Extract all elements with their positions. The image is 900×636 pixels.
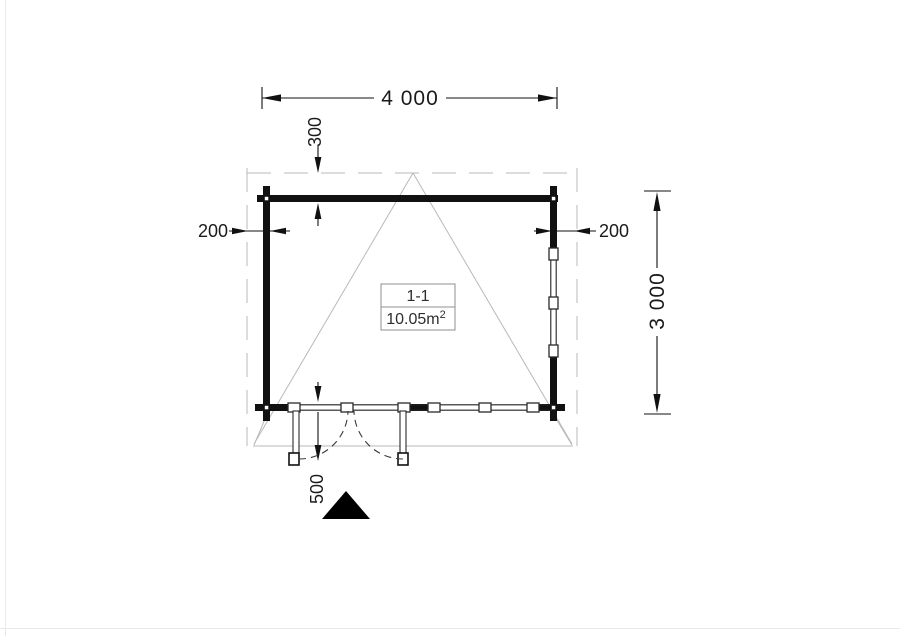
arrow-left-icon	[270, 228, 286, 234]
arrow-right-icon	[536, 228, 552, 234]
dim-overall-width: 4 000	[262, 87, 557, 110]
corner-joint-dot	[265, 406, 269, 410]
dim-overhang-right-value: 200	[599, 221, 629, 241]
wall-top	[257, 195, 558, 202]
dim-depth-value: 3 000	[646, 272, 669, 330]
arrow-down-icon	[315, 386, 322, 402]
dim-overhang-left-value: 200	[198, 221, 228, 241]
arrow-down-icon	[315, 157, 322, 173]
wall-right-upper	[550, 186, 557, 250]
window-mullion-marker	[549, 297, 558, 309]
dim-terrace-value: 500	[307, 474, 327, 504]
window-mullion-marker	[479, 403, 491, 412]
dim-overhang-top: 300	[305, 117, 325, 226]
arrow-up-icon	[653, 192, 660, 211]
floor-plan-drawing: 4 000 300 200 200 3 000 500	[0, 0, 900, 636]
wall-bottom-left	[255, 404, 288, 411]
arrow-down-icon	[653, 394, 660, 413]
door-meeting-marker	[341, 403, 353, 412]
door-leaf-left	[293, 411, 299, 453]
right-wall-window	[549, 248, 558, 357]
arrow-up-icon	[315, 203, 322, 219]
dim-width-value: 4 000	[381, 87, 439, 110]
door-leaf-right	[400, 411, 406, 453]
room-area: 10.05m2	[386, 309, 446, 328]
window-jamb-marker	[549, 345, 558, 357]
dim-overhang-right: 200	[534, 221, 629, 241]
corner-joint-dot	[552, 406, 556, 410]
arrow-right-icon	[538, 94, 557, 101]
dim-overhang-left: 200	[198, 221, 290, 241]
wall-right-lower	[550, 357, 557, 421]
door-swing-arc-left	[299, 411, 348, 459]
room-area-superscript: 2	[440, 309, 446, 321]
window-jamb-marker	[527, 403, 539, 412]
front-double-door	[289, 411, 408, 465]
window-jamb-marker	[549, 248, 558, 260]
corner-joint-dot	[265, 197, 269, 201]
wall-left	[263, 186, 270, 421]
corner-joint-dot	[552, 197, 556, 201]
arrow-right-icon	[232, 228, 248, 234]
dim-terrace-depth: 500	[307, 382, 327, 504]
room-label: 1-1 10.05m2	[381, 284, 455, 330]
arrow-left-icon	[262, 94, 281, 101]
room-number: 1-1	[406, 288, 429, 305]
arrow-down-icon	[315, 445, 322, 461]
door-leaf-left-end	[289, 453, 299, 465]
floor-plan-canvas: 4 000 300 200 200 3 000 500	[0, 0, 900, 636]
entrance-arrow-icon	[322, 491, 370, 519]
window-jamb-marker	[428, 403, 440, 412]
dim-overhang-top-value: 300	[305, 117, 325, 147]
arrow-left-icon	[574, 228, 590, 234]
room-area-value: 10.05m	[386, 311, 439, 328]
dim-overall-depth: 3 000	[644, 191, 671, 414]
door-swing-arc-right	[354, 411, 403, 459]
